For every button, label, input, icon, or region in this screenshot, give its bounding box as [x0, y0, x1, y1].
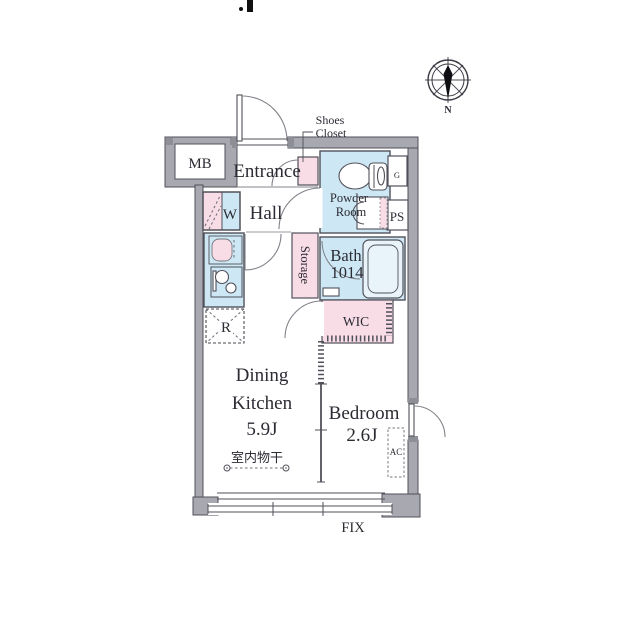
bedroom-exterior-door	[406, 398, 445, 442]
shoes-closet-label-line2: Closet	[316, 126, 347, 140]
powder-room-label-line1: Powder	[330, 191, 369, 205]
pipe-space-label: PS	[390, 209, 404, 224]
print-artifact	[239, 0, 253, 12]
toilet	[339, 163, 387, 190]
bedroom-label: Bedroom	[329, 403, 400, 424]
dk-bedroom-partition	[315, 341, 327, 482]
left-wall	[195, 185, 203, 500]
meter-box-label: MB	[188, 156, 211, 172]
powder-room-label-line2: Room	[336, 205, 367, 219]
indoor-drying-pole	[224, 465, 289, 471]
washer-label: W	[223, 207, 238, 223]
bedroom-size-label: 2.6J	[346, 425, 377, 446]
hall-label: Hall	[250, 203, 283, 224]
storage-label: Storage	[298, 246, 312, 285]
wic-door-arc	[285, 301, 322, 338]
fix-window	[208, 493, 392, 516]
right-wall-lower	[408, 440, 418, 502]
shoes-closet-box	[298, 157, 318, 185]
shoes-closet-label-line1: Shoes	[316, 113, 345, 127]
wic-label: WIC	[343, 314, 369, 329]
gas-meter-label: G	[394, 170, 400, 180]
bath-size-label: 1014	[331, 263, 364, 282]
compass-needle	[444, 65, 453, 99]
dining-kitchen-label-line1: Dining	[236, 365, 289, 386]
indoor-drying-label: 室内物干	[231, 450, 283, 465]
floor-plan-drawing: N	[0, 0, 640, 640]
dining-kitchen-size-label: 5.9J	[246, 419, 277, 440]
right-wall-upper	[408, 148, 418, 402]
compass-north-label: N	[444, 105, 452, 116]
top-wall	[288, 137, 418, 148]
dining-kitchen-label-line2: Kitchen	[232, 393, 293, 414]
entrance-door	[237, 95, 287, 141]
air-conditioner-label: AC	[390, 447, 403, 457]
fix-window-label: FIX	[341, 520, 365, 536]
entrance-label: Entrance	[233, 161, 301, 182]
powder-room-door-arc	[279, 188, 320, 229]
refrigerator-label: R	[221, 320, 231, 336]
floor-plan-page: N	[0, 0, 640, 640]
hall-dk-door	[245, 232, 291, 270]
compass: N	[425, 57, 471, 116]
